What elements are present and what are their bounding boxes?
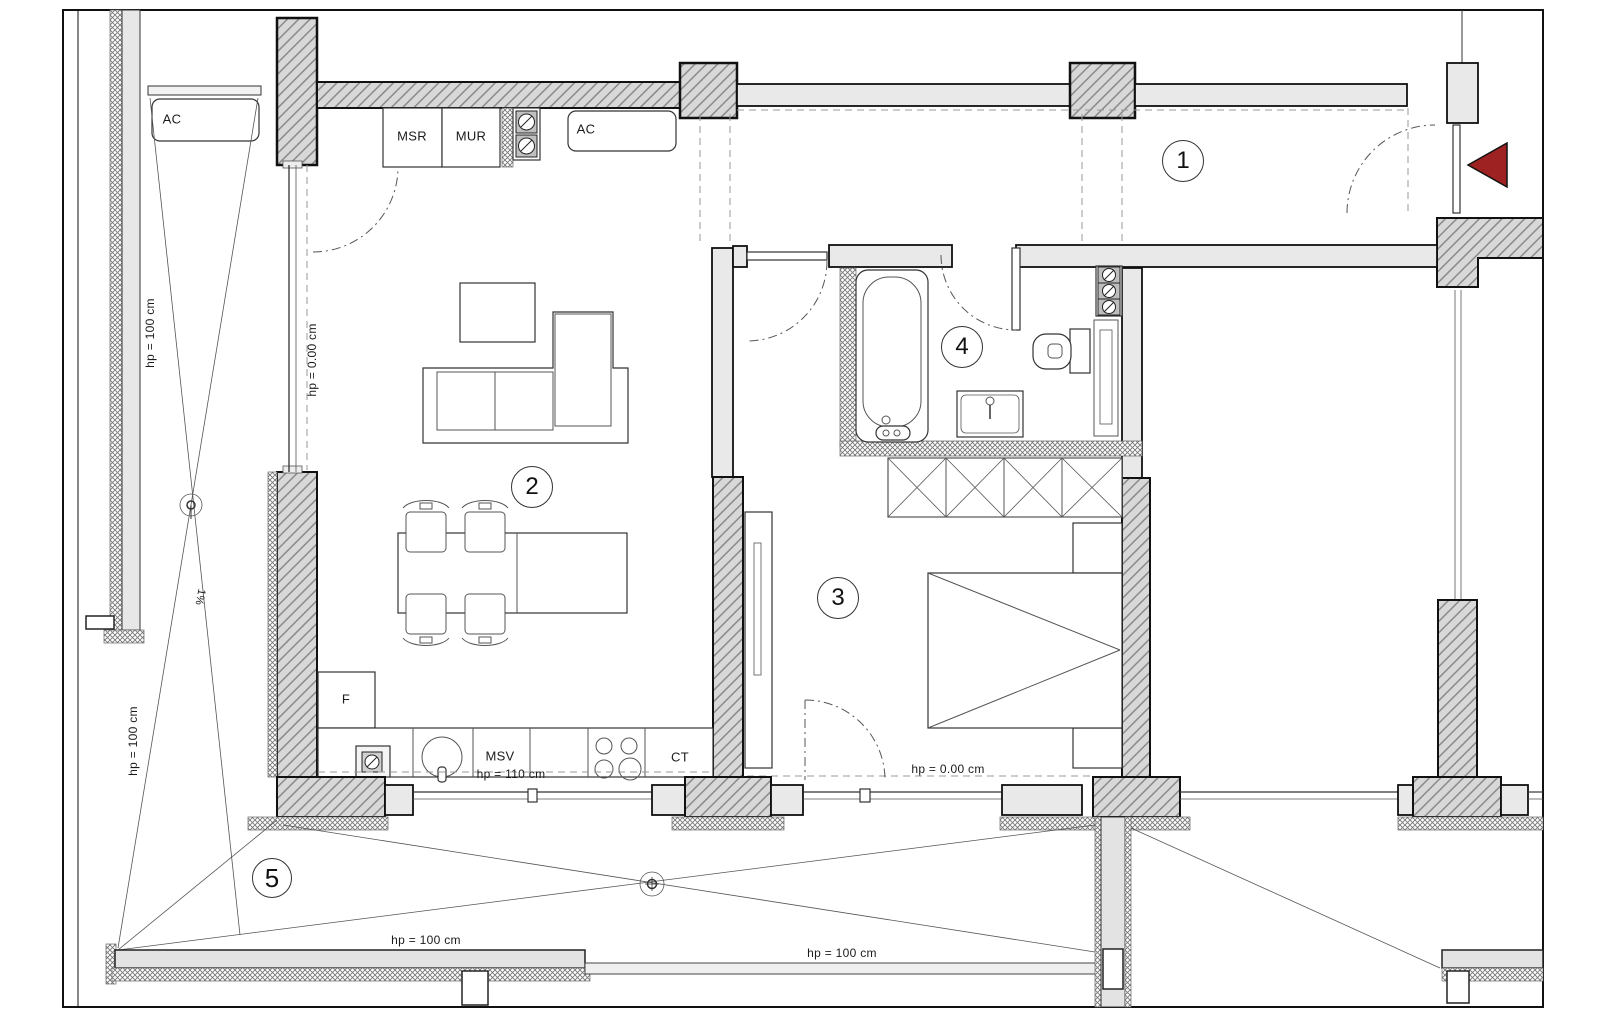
parapet — [1442, 950, 1543, 968]
terrace — [106, 817, 1543, 1007]
wall-pier — [1413, 777, 1501, 817]
wall-bedroom-east — [1122, 478, 1150, 777]
window-jamb — [1398, 785, 1414, 815]
door-jamb — [733, 246, 747, 267]
room-number-4: 4 — [941, 326, 983, 368]
wall-west — [277, 472, 317, 777]
mur-label: MUR — [456, 129, 487, 144]
coffee-table — [460, 283, 535, 342]
msv-label: MSV — [485, 749, 514, 764]
living-furniture — [398, 283, 628, 646]
window-jamb — [385, 785, 413, 815]
window-jamb — [1501, 785, 1528, 815]
ac-balcony-label: AC — [163, 112, 182, 127]
parapet — [585, 963, 1100, 974]
balcony — [86, 10, 261, 948]
hp-bedroom-label: hp = 0.00 cm — [911, 762, 984, 776]
fridge-label: F — [342, 692, 350, 707]
parapet — [115, 950, 585, 968]
wall-hall-south — [1016, 245, 1437, 267]
radiator-icon — [1094, 320, 1118, 436]
entry-door-post — [1447, 63, 1478, 123]
sink-vanity-icon — [957, 391, 1023, 437]
room-number-5: 5 — [252, 858, 292, 898]
wall-corner — [277, 777, 385, 817]
terrace-door-swing — [805, 700, 885, 780]
msr-label: MSR — [397, 129, 427, 144]
wall-hall-south — [829, 245, 952, 267]
floor-drain-icon — [180, 494, 202, 519]
bathtub-icon — [856, 270, 928, 442]
hp-living-label: hp = 0.00 cm — [305, 323, 319, 396]
room-number-2: 2 — [511, 466, 553, 508]
hp-terrace-left-label: hp = 100 cm — [391, 933, 461, 947]
living-west-window — [283, 161, 398, 473]
window-jamb — [1002, 785, 1082, 815]
slope-line — [150, 98, 240, 935]
hp-counter-label: hp = 110 cm — [477, 767, 546, 781]
wall-pier — [685, 777, 771, 817]
bedroom-door-swing — [747, 261, 827, 341]
window-jamb — [771, 785, 803, 815]
wall-kitchen-north — [317, 82, 680, 108]
slope-line — [1131, 828, 1440, 968]
hp-balcony-upper-label: hp = 100 cm — [143, 298, 157, 368]
floor-plan: AC AC MSR MUR F MSV CT hp = 110 cm hp = … — [0, 0, 1613, 1017]
balcony-door-swing — [313, 167, 398, 252]
ct-label: CT — [671, 750, 689, 765]
window-jamb — [652, 785, 685, 815]
wall-bath-partition — [840, 268, 856, 447]
divider-post — [1103, 949, 1123, 989]
floor-plan-drawing — [0, 0, 1613, 1017]
ac-hall-label: AC — [577, 122, 596, 137]
room-number-1: 1 — [1162, 140, 1204, 182]
wall-east — [1438, 600, 1477, 777]
wall-hall-north — [1135, 84, 1407, 106]
wall-bath-south — [840, 441, 1142, 456]
kitchen — [318, 108, 713, 782]
wall-column — [277, 18, 317, 165]
parapet-post — [462, 971, 488, 1005]
ac-bracket — [148, 86, 261, 95]
hp-terrace-right-label: hp = 100 cm — [807, 946, 877, 960]
bath-shaft-pipes-icon — [1096, 266, 1122, 316]
bedroom — [745, 458, 1122, 780]
room-number-3: 3 — [817, 577, 859, 619]
nightstand — [1073, 728, 1122, 768]
wall-column — [680, 63, 737, 118]
bed — [928, 573, 1122, 728]
bedroom-door-leaf — [747, 252, 827, 260]
entry-door-swing — [1347, 125, 1435, 213]
wall-pier — [1093, 777, 1180, 817]
entry-door-leaf — [1453, 125, 1460, 213]
tall-cabinet — [745, 512, 772, 768]
parapet-post — [1447, 971, 1469, 1003]
wall-hall-north — [737, 84, 1070, 106]
entry-arrow-icon — [1468, 143, 1507, 187]
bath-door-leaf — [1012, 248, 1020, 330]
hp-balcony-lower-label: hp = 100 cm — [126, 706, 140, 776]
wardrobe — [888, 458, 1122, 517]
bathroom — [856, 266, 1122, 442]
wall-corridor — [712, 248, 733, 477]
wall-living-bedroom — [713, 477, 743, 777]
toilet-icon — [1033, 329, 1090, 373]
wall-entry-side — [1437, 218, 1543, 287]
nightstand — [1073, 523, 1122, 573]
